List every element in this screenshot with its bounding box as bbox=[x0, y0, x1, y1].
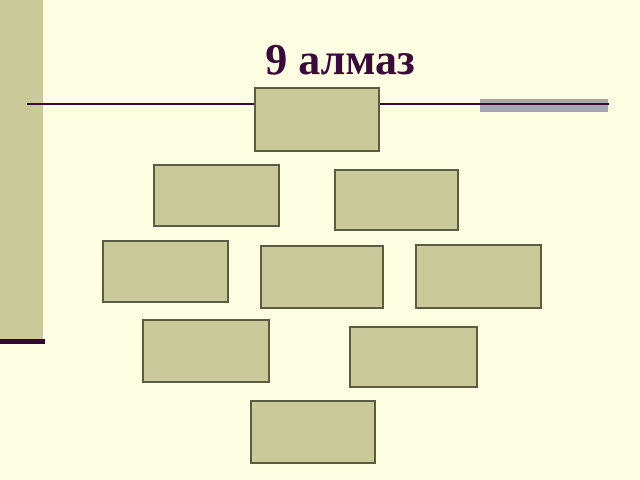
diamond-box bbox=[349, 326, 478, 388]
diamond-box bbox=[260, 245, 384, 309]
presentation-slide: 9 алмаз bbox=[0, 0, 640, 480]
diamond-box bbox=[415, 244, 542, 309]
diamond-box bbox=[142, 319, 270, 383]
diamond-box bbox=[102, 240, 229, 303]
diamond-box bbox=[254, 87, 380, 152]
diamond-box bbox=[250, 400, 376, 464]
diamond-boxes-layer bbox=[0, 0, 640, 480]
diamond-box bbox=[153, 164, 280, 227]
diamond-box bbox=[334, 169, 459, 231]
